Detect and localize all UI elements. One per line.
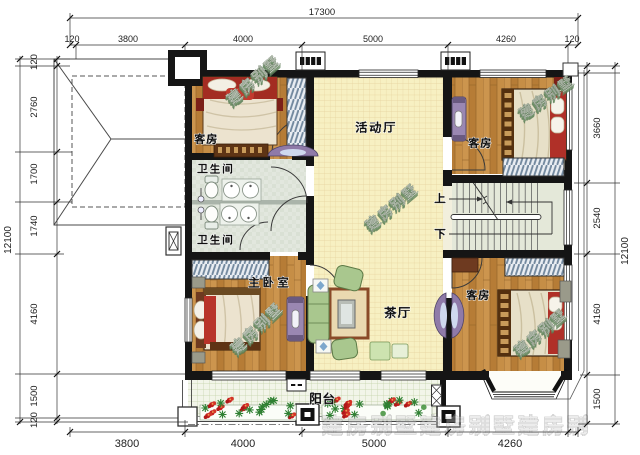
svg-text:12100: 12100: [3, 226, 14, 254]
svg-text:17300: 17300: [309, 7, 335, 18]
svg-text:2540: 2540: [592, 207, 603, 228]
svg-text:120: 120: [29, 412, 40, 428]
svg-text:1740: 1740: [29, 215, 40, 236]
svg-text:4260: 4260: [498, 438, 522, 450]
svg-text:12100: 12100: [620, 237, 631, 265]
svg-text:1700: 1700: [29, 163, 40, 184]
svg-text:1500: 1500: [592, 388, 603, 409]
svg-text:4000: 4000: [233, 34, 253, 44]
svg-text:120: 120: [564, 34, 579, 44]
svg-text:4000: 4000: [231, 438, 255, 450]
svg-text:120: 120: [29, 54, 40, 70]
svg-text:3800: 3800: [118, 34, 138, 44]
svg-text:4160: 4160: [592, 303, 603, 324]
svg-text:120: 120: [64, 34, 79, 44]
svg-text:4260: 4260: [496, 34, 516, 44]
svg-text:3660: 3660: [592, 117, 603, 138]
svg-text:1500: 1500: [29, 385, 40, 406]
svg-text:4160: 4160: [29, 303, 40, 324]
svg-text:5000: 5000: [362, 438, 386, 450]
svg-text:3800: 3800: [115, 438, 139, 450]
svg-text:2760: 2760: [29, 96, 40, 117]
svg-text:5000: 5000: [363, 34, 383, 44]
